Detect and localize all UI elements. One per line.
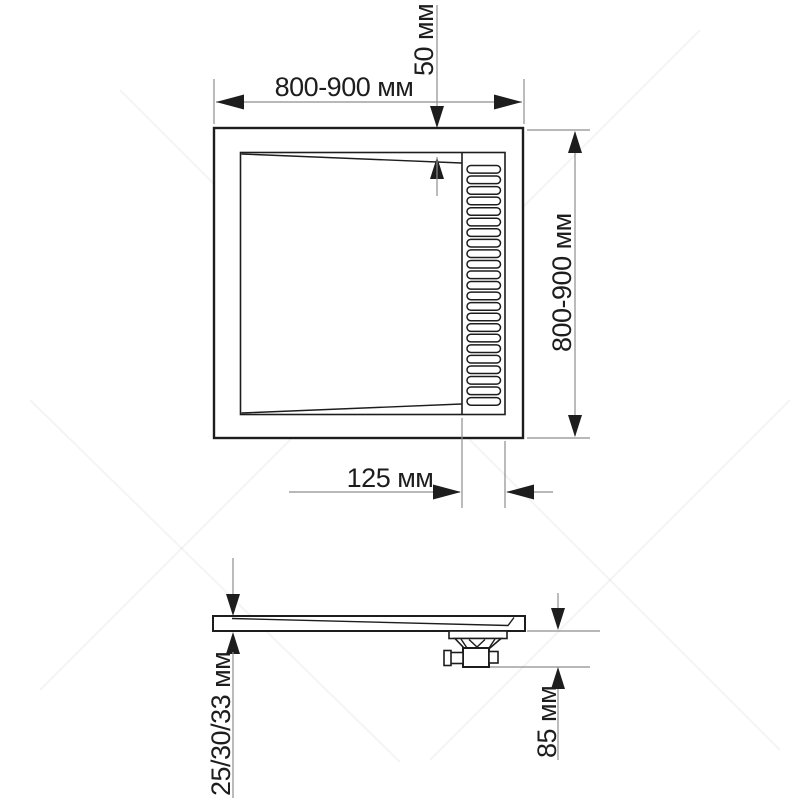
grate-slat [467,176,501,184]
arrow-up-icon [551,667,565,689]
grate-slats [467,166,501,406]
arrow-right-icon [494,95,522,110]
plan-view [214,128,523,438]
grate-slat [467,345,501,353]
grate-slat [467,229,501,237]
grate-slat [467,271,501,279]
grate-slat [467,355,501,363]
grate-slat [467,218,501,226]
drain-side-stub [489,652,498,664]
drain-body [463,648,489,667]
dim-label-channel-width: 125 мм [347,463,434,493]
arrow-right-icon [433,485,461,500]
grate-slat [467,334,501,342]
grate-slat [467,292,501,300]
grate-slat [467,377,501,385]
grate-slat [467,387,501,395]
drain-outlet-cap [444,651,451,666]
dim-label-thickness: 25/30/33 мм [206,652,236,796]
arrow-down-icon [568,415,582,437]
grate-slat [467,250,501,258]
dim-plan-width: 800-900 мм [214,72,524,124]
dim-plan-height: 800-900 мм [527,130,590,438]
arrow-down-icon [430,106,444,128]
arrow-up-icon [226,632,240,654]
side-view [213,616,525,667]
grate-slat [467,260,501,268]
arrow-left-icon [506,485,534,500]
arrow-down-icon [226,594,240,616]
grate-slat [467,239,501,247]
grate-slat [467,282,501,290]
grate-slat [467,187,501,195]
drain-trap [444,631,507,667]
dim-label-drain-height: 85 мм [532,686,562,758]
grate-slat [467,208,501,216]
grate-slat [467,398,501,406]
dim-thickness: 25/30/33 мм [206,558,240,798]
grate-slat [467,197,501,205]
drain-flange [449,631,507,639]
tray-profile [213,616,525,631]
grate-slat [467,313,501,321]
dim-label-edge-offset: 50 мм [409,4,439,76]
technical-drawing-canvas: 800-900 мм 50 мм 800-900 мм 125 мм [0,0,800,800]
arrow-left-icon [216,95,244,110]
dim-label-plan-width: 800-900 мм [275,72,414,102]
grate-slat [467,166,501,174]
grate-slat [467,303,501,311]
dim-label-plan-height: 800-900 мм [547,213,577,352]
grate-slat [467,324,501,332]
technical-drawing-page: 800-900 мм 50 мм 800-900 мм 125 мм [0,0,800,800]
grate-slat [467,366,501,374]
arrow-up-icon [568,131,582,153]
